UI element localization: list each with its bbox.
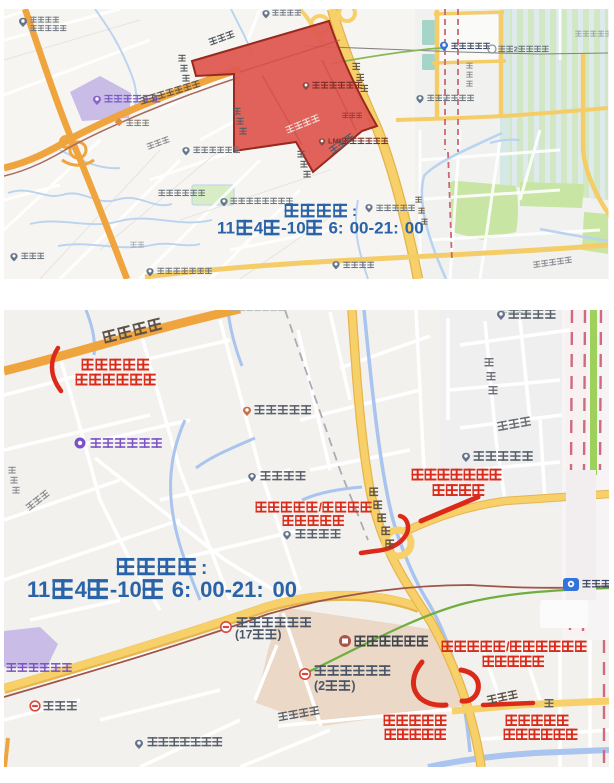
svg-text:-10: -10 <box>110 577 142 602</box>
svg-text:): ) <box>278 627 282 641</box>
svg-text:00-21: 00-21 <box>350 219 393 238</box>
svg-text::: : <box>338 219 344 238</box>
svg-text:LMI: LMI <box>328 136 341 145</box>
svg-text:/: / <box>506 640 510 654</box>
svg-text:11: 11 <box>217 219 235 238</box>
svg-text:): ) <box>351 679 355 693</box>
svg-text:4: 4 <box>254 219 264 238</box>
svg-text:(2: (2 <box>314 679 325 693</box>
svg-text:00-21: 00-21 <box>200 577 256 602</box>
svg-text:-10: -10 <box>281 219 306 238</box>
svg-text:4: 4 <box>75 577 88 602</box>
svg-text:(17: (17 <box>235 627 253 641</box>
svg-text::: : <box>352 203 357 220</box>
svg-text::: : <box>393 219 399 238</box>
svg-text:2: 2 <box>514 45 518 54</box>
svg-text::: : <box>201 558 207 579</box>
svg-text:6: 6 <box>329 219 338 238</box>
svg-text::: : <box>184 577 191 602</box>
svg-text::: : <box>256 577 263 602</box>
svg-text:6: 6 <box>172 577 184 602</box>
svg-text:00: 00 <box>405 219 424 238</box>
svg-text:11: 11 <box>27 577 50 602</box>
svg-text:00: 00 <box>273 577 297 602</box>
